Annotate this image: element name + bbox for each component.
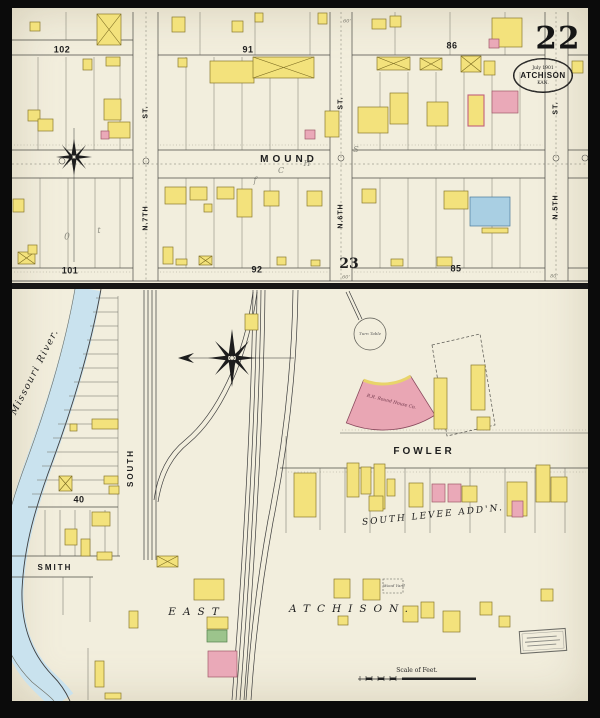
building-footprint <box>480 602 492 615</box>
building-footprint <box>390 16 401 27</box>
building-footprint <box>358 107 388 133</box>
street-label-st-7th: ST. <box>143 105 150 118</box>
building-footprint <box>387 479 395 496</box>
building-footprint <box>104 476 118 484</box>
measurement-60-bottom: 60' <box>342 276 350 281</box>
building-footprint <box>83 59 92 70</box>
building-footprint <box>92 512 110 526</box>
building-footprint <box>204 204 212 212</box>
street-label-n7th: N.7TH <box>143 205 150 230</box>
building-footprint <box>38 119 53 131</box>
building-footprint <box>432 484 445 502</box>
sanborn-map-sheet: 22 July 1901 ATCHISON KAN. MOUND N.7TH S… <box>0 0 600 718</box>
stamp-state: KAN. <box>537 81 549 86</box>
building-footprint <box>489 39 499 48</box>
building-footprint <box>264 191 279 206</box>
building-footprint <box>334 579 350 598</box>
building-footprint <box>255 13 263 22</box>
building-footprint <box>362 189 376 203</box>
building-footprint <box>391 259 403 266</box>
section-divider <box>12 281 588 289</box>
building-footprint <box>178 58 187 67</box>
building-footprint <box>28 245 37 254</box>
pencil-mark-f: f <box>254 177 257 185</box>
building-footprint <box>471 365 485 410</box>
building-footprint <box>210 61 254 83</box>
building-footprint <box>311 260 320 266</box>
building-footprint <box>207 617 228 629</box>
sheet-ref-23: 23 <box>339 257 358 271</box>
building-footprint <box>536 465 550 502</box>
building-footprint <box>372 19 386 29</box>
building-footprint <box>232 21 243 32</box>
building-footprint <box>361 467 371 494</box>
pencil-mark-zero: 0 <box>64 234 70 243</box>
scale-label: Scale of Feet. <box>396 668 437 674</box>
building-footprint <box>81 539 90 556</box>
sheet-number: 22 <box>535 24 580 55</box>
street-label-fowler: FOWLER <box>393 447 454 457</box>
building-footprint <box>129 611 138 628</box>
block-number-92: 92 <box>251 266 262 275</box>
building-footprint <box>65 529 77 545</box>
block-number-102: 102 <box>54 46 71 55</box>
publisher-oval-stamp: July 1901 ATCHISON KAN. <box>513 58 573 93</box>
building-footprint <box>572 61 583 73</box>
building-footprint <box>97 552 112 560</box>
building-footprint <box>347 463 359 497</box>
building-footprint <box>470 197 510 226</box>
building-footprint <box>421 602 434 618</box>
building-footprint <box>468 95 484 126</box>
building-footprint <box>462 486 477 502</box>
stamp-city: ATCHISON <box>520 71 565 80</box>
building-footprint <box>277 257 286 265</box>
building-footprint <box>190 187 207 200</box>
building-footprint <box>307 191 322 206</box>
building-footprint <box>305 130 315 139</box>
building-footprint <box>318 13 327 24</box>
block-number-85: 85 <box>450 265 461 274</box>
building-footprint <box>237 189 252 217</box>
street-label-st-5th: ST. <box>553 101 560 114</box>
building-footprint <box>108 122 130 138</box>
building-footprint <box>541 589 553 601</box>
railroad-tracks <box>144 290 362 700</box>
building-footprint <box>338 616 348 625</box>
pencil-mark-s: S <box>353 146 358 154</box>
building-footprint <box>512 501 523 517</box>
building-footprint <box>163 247 173 264</box>
street-centerlines <box>12 12 588 281</box>
building-footprint <box>101 131 109 139</box>
street-label-n5th: N.5TH <box>553 194 560 219</box>
building-footprint <box>208 651 237 677</box>
building-footprint <box>294 473 316 517</box>
building-footprint <box>434 378 447 429</box>
wood-yard-label: Wood Yard <box>383 584 405 588</box>
building-footprint <box>448 484 461 502</box>
building-footprint <box>106 57 120 66</box>
building-footprint <box>363 579 380 600</box>
street-label-south: SOUTH <box>127 449 135 487</box>
street-label-n6th: N.6TH <box>338 203 345 228</box>
building-footprint <box>30 22 40 31</box>
building-footprint <box>105 693 121 699</box>
compass-rose-upper <box>56 128 92 262</box>
block-number-101: 101 <box>62 267 79 276</box>
building-footprint <box>551 477 567 502</box>
measurement-60-top: 60' <box>343 20 351 25</box>
building-footprint <box>176 259 187 265</box>
block-number-91: 91 <box>242 46 253 55</box>
building-footprint <box>477 417 490 430</box>
district-label-atchison: ATCHISON. <box>289 604 415 615</box>
block-number-40: 40 <box>73 496 84 505</box>
building-footprint <box>207 630 227 642</box>
building-footprint <box>390 93 408 124</box>
street-label-st-6th: ST. <box>338 96 345 109</box>
building-footprint <box>95 661 104 687</box>
block-number-86: 86 <box>446 42 457 51</box>
pencil-mark-t: t <box>97 227 100 235</box>
building-footprint <box>499 616 510 627</box>
building-footprint <box>492 91 518 113</box>
building-footprint <box>482 228 508 233</box>
street-label-smith: SMITH <box>38 564 73 572</box>
building-footprint <box>444 191 468 209</box>
building-footprint <box>165 187 186 204</box>
building-footprint <box>484 61 495 75</box>
street-grid-upper <box>12 12 588 281</box>
measurement-80-right: 80' <box>550 275 558 280</box>
pencil-mark-c: C <box>278 167 284 175</box>
library-stamp <box>519 628 566 653</box>
building-footprint <box>217 187 234 199</box>
building-footprint <box>443 611 460 632</box>
building-footprint <box>409 483 423 507</box>
district-label-east: EAST <box>168 607 225 618</box>
compass-rose-lower <box>178 329 294 387</box>
building-footprint <box>427 102 448 126</box>
pencil-mark-h: H <box>304 160 311 168</box>
building-footprint <box>104 99 121 120</box>
building-footprint <box>245 314 258 330</box>
scale-bar <box>358 676 476 681</box>
building-footprint <box>109 486 119 494</box>
building-footprint <box>172 17 185 32</box>
building-footprint <box>13 199 24 212</box>
building-footprint <box>70 424 77 431</box>
intersection-markers <box>59 155 588 164</box>
building-footprint <box>369 496 383 511</box>
building-footprint <box>325 111 339 137</box>
turntable-label: Turn Table <box>359 332 381 336</box>
building-footprint <box>92 419 118 429</box>
building-footprint <box>194 579 224 600</box>
stamp-date: July 1901 <box>532 66 554 71</box>
